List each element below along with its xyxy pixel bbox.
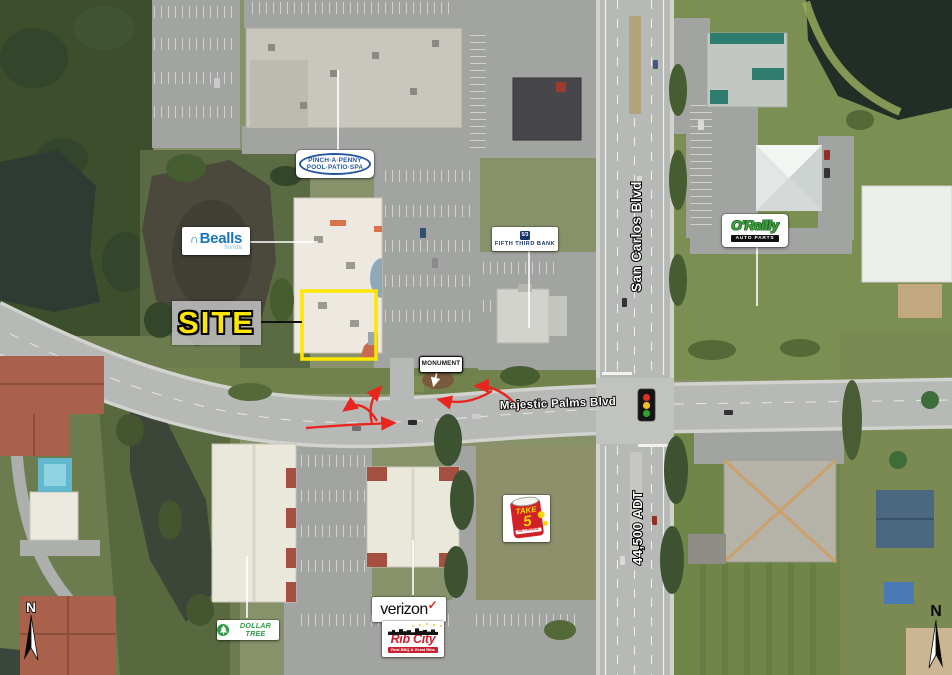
pinch-a-penny-line2: POOL·PATIO·SPA: [307, 164, 363, 171]
bealls-label: ∩ Bealls florida: [182, 227, 250, 255]
svg-text:N: N: [26, 599, 36, 615]
take-5-oil-change-text: OIL CHANGE: [515, 528, 541, 535]
take-5-oil-can-icon: TAKE 5 OIL CHANGE: [509, 498, 543, 538]
bealls-building: [294, 198, 382, 358]
oreilly-name: O'Reilly: [731, 219, 778, 234]
take-5-oil-drop-icon: [537, 511, 545, 519]
teal-gabled-building: [707, 33, 787, 107]
bealls-arch-icon: ∩: [190, 233, 199, 246]
fifth-third-bank-label: 5/3 FIFTH THIRD BANK: [492, 227, 558, 251]
rib-city-name: Rib City: [391, 633, 436, 647]
traffic-count-label: 44,500 ADT: [630, 490, 645, 565]
fifth-third-name: FIFTH THIRD BANK: [495, 241, 555, 247]
dollar-tree-strip-building: [212, 444, 296, 602]
site-entrance-drive: [390, 358, 414, 404]
median-north: [629, 16, 641, 114]
site-text: SITE: [178, 306, 255, 340]
fifth-third-shield-icon: 5/3: [520, 231, 530, 240]
take-5-five-text: 5: [522, 515, 532, 529]
san-carlos-blvd-label: San Carlos Blvd: [629, 181, 644, 292]
pinch-a-penny-oval-logo: PINCH·A·PENNY POOL·PATIO·SPA: [299, 153, 371, 175]
intersection: [596, 378, 674, 444]
rib-city-tagline: Real BBQ & Great Ribs: [388, 647, 438, 652]
dollar-tree-label: DOLLAR TREE: [217, 620, 279, 640]
traffic-light-icon: [638, 389, 655, 421]
dark-roof-building: [513, 78, 581, 140]
monument-sign-label: MONUMENT: [419, 356, 463, 373]
site-callout: SITE: [172, 301, 261, 345]
take-5-label: TAKE 5 OIL CHANGE: [503, 495, 550, 542]
take-5-oil-drop-small-icon: [542, 521, 547, 526]
monument-text: MONUMENT: [422, 361, 461, 368]
oreilly-auto-parts-text: AUTO PARTS: [731, 235, 780, 242]
dollar-tree-name: DOLLAR TREE: [232, 622, 279, 638]
verizon-check-icon: ✓: [428, 599, 438, 612]
svg-text:N: N: [930, 603, 942, 620]
pinch-a-penny-label: PINCH·A·PENNY POOL·PATIO·SPA: [296, 150, 374, 178]
pinch-a-penny-line1: PINCH·A·PENNY: [307, 157, 363, 164]
dollar-tree-tree-icon: [219, 625, 228, 635]
rib-city-label: Rib City Real BBQ & Great Ribs: [382, 621, 444, 657]
verizon-label: verizon ✓: [372, 597, 446, 622]
oreilly-label: O'Reilly AUTO PARTS: [722, 214, 788, 247]
dollar-tree-logo-icon: [217, 624, 229, 636]
oreilly-building: [756, 145, 822, 211]
rib-city-sun-dots: [412, 625, 414, 627]
aerial-site-map: N N San Carlos Blvd 44,500 ADT Majestic …: [0, 0, 952, 675]
verizon-name: verizon: [380, 601, 427, 619]
warehouse-building: [246, 28, 462, 128]
bealls-florida-text: florida: [224, 244, 242, 251]
aerial-photo-base: N N San Carlos Blvd 44,500 ADT Majestic …: [0, 0, 952, 675]
